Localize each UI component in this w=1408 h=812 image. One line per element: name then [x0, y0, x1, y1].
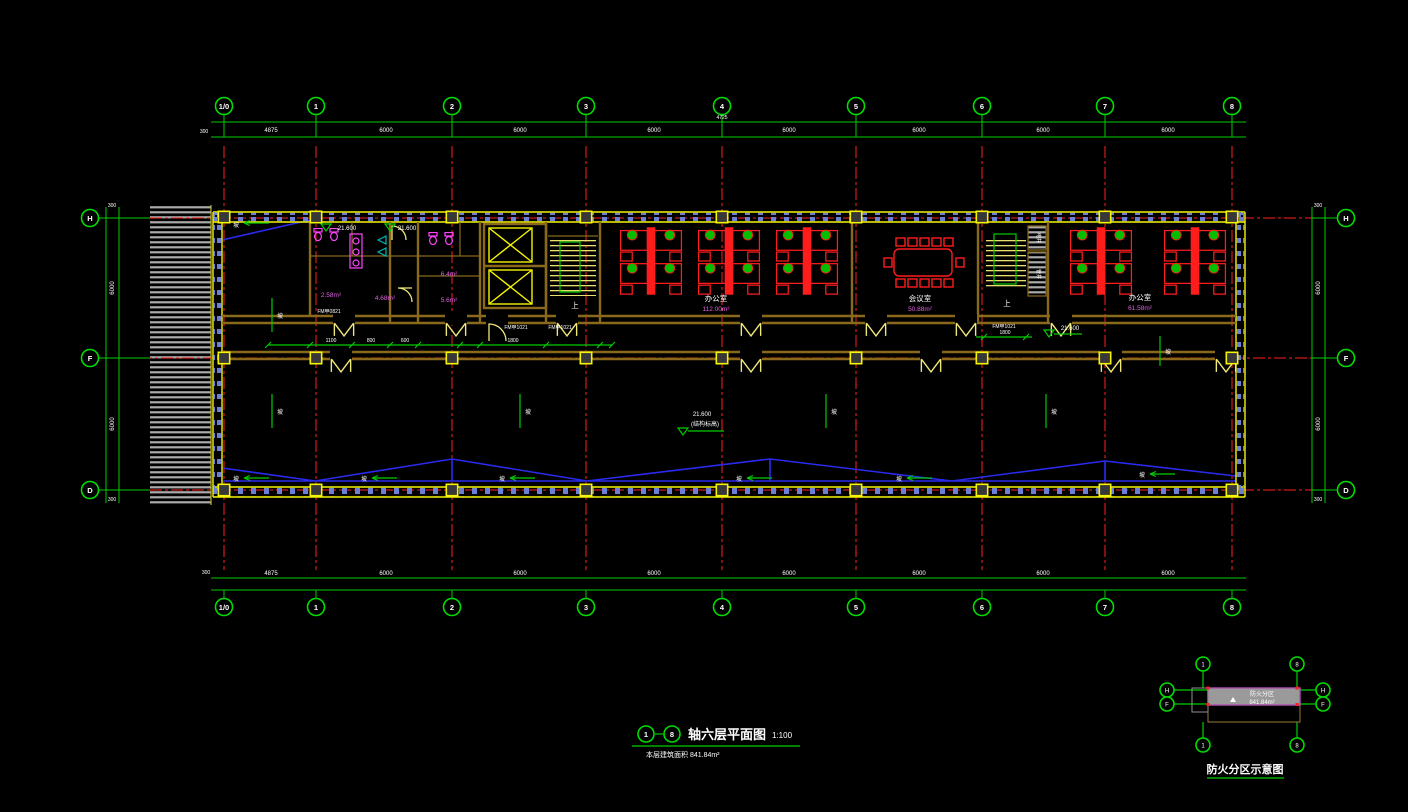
keyplan-bubble: F — [1160, 697, 1174, 711]
grid-bubble-label: 7 — [1103, 603, 1107, 612]
slope-label: 坡 — [277, 312, 283, 320]
keyplan-fire-compartment: 防火分区 841.84m² 1 8 1 8 H F H F 防火分区示意图 — [1160, 657, 1330, 778]
drawing-title-block: 1 8 轴六层平面图 1:100 本层建筑面积 841.84m² — [632, 726, 800, 759]
grid-bubble-label: F — [88, 354, 93, 363]
stair-up-label: 上 — [571, 301, 579, 310]
dim-label-extra: 4725 — [716, 115, 727, 121]
dim-label-edge: 300 — [108, 203, 117, 209]
level-triangle-icon — [678, 428, 688, 435]
dim-label: 6000 — [1036, 128, 1050, 134]
toilet-fixtures — [314, 229, 453, 269]
grid-bubble-label: 1 — [314, 603, 318, 612]
keyplan-zone-label: 防火分区 — [1250, 690, 1274, 698]
grid-bubble-col: 8 — [1224, 98, 1241, 115]
grid-bubbles-right: H F D — [1338, 210, 1355, 499]
grid-bubble-col: 7 — [1097, 98, 1114, 115]
grid-bubble-row: F — [82, 350, 99, 367]
slope-label: 坡 — [831, 408, 837, 416]
grid-bubble-row: H — [82, 210, 99, 227]
grid-bubble-col: 7 — [1097, 599, 1114, 616]
dim-label: 6000 — [110, 417, 116, 431]
dim-label: 6000 — [782, 128, 796, 134]
urinal-icon — [378, 236, 386, 244]
grid-bubble-col: 1 — [308, 599, 325, 616]
grid-bubble-col: 6 — [974, 98, 991, 115]
dim-label: 1100 — [326, 338, 337, 344]
title-bubble: 1 — [638, 726, 654, 742]
dim-label: 6000 — [647, 128, 661, 134]
grid-bubble-label: 2 — [450, 603, 454, 612]
dim-label: 6000 — [513, 128, 527, 134]
dim-label: 6000 — [912, 571, 926, 577]
grid-bubble-label: 8 — [1230, 102, 1234, 111]
keyplan-bubble: 8 — [1290, 738, 1304, 752]
shaft-label: 管井 — [1035, 269, 1042, 279]
slope-arrow-icon — [907, 476, 932, 481]
grid-bubbles-bottom: 1/0 1 2 3 4 5 6 7 8 — [216, 599, 1241, 616]
grid-bubble-col: 2 — [444, 98, 461, 115]
fire-door-tag: FM甲1021 — [548, 325, 572, 331]
urinal-icon — [378, 248, 386, 256]
grid-bubbles-left: H F D — [82, 210, 99, 499]
grid-bubble-col: 5 — [848, 599, 865, 616]
grid-bubble-label: 1/0 — [219, 102, 229, 111]
staircase-2: 上 — [986, 234, 1026, 308]
dim-label-edge: 300 — [200, 129, 209, 135]
room-name: 会议室 — [909, 293, 932, 303]
title-bubble: 8 — [664, 726, 680, 742]
fire-door-tag: FM甲1021 — [504, 325, 528, 331]
slope-label: 坡 — [736, 475, 742, 483]
level-value: 21.600 — [338, 226, 357, 232]
dim-label: 6000 — [1036, 571, 1050, 577]
swing-door-icon — [398, 288, 412, 302]
dimension-labels: 4875 6000 6000 6000 6000 6000 6000 6000 … — [108, 115, 1323, 577]
room-area: 61.58m² — [1128, 305, 1153, 312]
floor-plan-canvas[interactable]: 1/0 1 2 3 4 5 6 7 8 1/0 1 2 3 4 5 6 7 8 … — [0, 0, 1408, 812]
cad-drawing-stage: 1/0 1 2 3 4 5 6 7 8 1/0 1 2 3 4 5 6 7 8 … — [0, 0, 1408, 812]
dim-label: 6000 — [782, 571, 796, 577]
grid-bubble-label: 5 — [854, 603, 858, 612]
grid-bubble-col: 1/0 — [216, 599, 233, 616]
keyplan-bubble-label: H — [1321, 689, 1325, 695]
grid-bubble-label: 1 — [314, 102, 318, 111]
grid-bubble-col: 1/0 — [216, 98, 233, 115]
workstation-cluster — [777, 228, 838, 294]
slope-arrow-icon — [1150, 472, 1175, 477]
grid-bubble-label: 3 — [584, 603, 588, 612]
room-area: 4.68m² — [375, 295, 396, 302]
grid-bubble-row: F — [1338, 350, 1355, 367]
dim-label: 1800 — [999, 330, 1010, 336]
grid-bubble-col: 3 — [578, 98, 595, 115]
grid-bubble-col: 3 — [578, 599, 595, 616]
dim-label-edge: 300 — [202, 570, 211, 576]
dim-label-edge: 300 — [1314, 497, 1323, 503]
slope-arrow-icon — [510, 476, 535, 481]
dim-label: 6000 — [1316, 281, 1322, 295]
dim-label: 6000 — [912, 128, 926, 134]
level-value: 21.600 — [1061, 326, 1080, 332]
level-value: 21.600 — [693, 412, 712, 418]
grid-bubble-label: 7 — [1103, 102, 1107, 111]
workstation-cluster — [1165, 228, 1226, 294]
staircase-1: 上 — [548, 236, 598, 310]
grid-bubble-label: 6 — [980, 102, 984, 111]
level-value: 21.600 — [398, 226, 417, 232]
slope-label: 坡 — [525, 408, 531, 416]
keyplan-bubble: 8 — [1290, 657, 1304, 671]
slope-arrow-icon — [244, 476, 269, 481]
dim-label-edge: 300 — [1314, 203, 1323, 209]
slope-label: 坡 — [277, 408, 283, 416]
room-area: 112.00m² — [703, 306, 731, 313]
grid-bubble-label: 6 — [980, 603, 984, 612]
keyplan-caption: 防火分区示意图 — [1207, 762, 1284, 776]
slope-arrow-icon — [372, 476, 397, 481]
slope-label: 坡 — [233, 221, 239, 229]
conference-table-set — [884, 238, 964, 287]
shaft-label: 电井 — [1035, 233, 1042, 243]
grid-bubble-col: 4 — [714, 98, 731, 115]
keyplan-bubble: F — [1316, 697, 1330, 711]
keyplan-bubble: 1 — [1196, 738, 1210, 752]
drawing-title: 轴六层平面图 — [688, 727, 766, 742]
room-name: 办公室 — [705, 293, 728, 303]
dim-label: 800 — [367, 338, 376, 344]
dim-label: 6000 — [513, 571, 527, 577]
toilet-icon — [429, 233, 437, 245]
slope-label: 坡 — [361, 475, 367, 483]
room-area: 50.88m² — [908, 306, 933, 313]
keyplan-bubble-label: F — [1165, 703, 1169, 709]
keyplan-bubble-label: H — [1165, 689, 1169, 695]
dim-label: 4875 — [264, 571, 278, 577]
keyplan-bubble: 1 — [1196, 657, 1210, 671]
grid-bubble-col: 5 — [848, 98, 865, 115]
grid-bubble-label: 3 — [584, 102, 588, 111]
dim-label-edge: 300 — [108, 497, 117, 503]
grid-bubble-row: D — [1338, 482, 1355, 499]
dim-label: 6000 — [379, 128, 393, 134]
workstation-cluster — [699, 228, 760, 294]
slope-label: 坡 — [499, 475, 505, 483]
dim-label: 6000 — [1161, 128, 1175, 134]
title-bubble-label: 8 — [670, 730, 674, 739]
grid-bubble-label: 8 — [1230, 603, 1234, 612]
dim-label: 6000 — [110, 281, 116, 295]
grid-bubble-col: 8 — [1224, 599, 1241, 616]
slope-label: 坡 — [233, 475, 239, 483]
room-area: 6.4m² — [441, 271, 458, 278]
workstation-cluster — [621, 228, 682, 294]
keyplan-bubble: H — [1160, 683, 1174, 697]
slope-arrow-icon — [244, 221, 269, 226]
dim-label: 6000 — [1161, 571, 1175, 577]
room-area: 5.6m² — [441, 297, 458, 304]
grid-bubble-label: D — [1343, 486, 1349, 495]
grid-bubble-label: H — [87, 214, 92, 223]
dim-label: 600 — [401, 338, 410, 344]
fire-door-tag: FM甲1021 — [992, 324, 1016, 330]
drawing-scale: 1:100 — [772, 731, 793, 740]
keyplan-zone-area: 841.84m² — [1249, 700, 1274, 706]
toilet-icon — [330, 229, 338, 241]
dim-label: 6000 — [379, 571, 393, 577]
toilet-icon — [314, 229, 322, 241]
grid-bubble-label: D — [87, 486, 93, 495]
room-area: 2.58m² — [321, 292, 342, 299]
keyplan-bubble: H — [1316, 683, 1330, 697]
dim-label: 6000 — [647, 571, 661, 577]
stair-up-label: 上 — [1003, 299, 1011, 308]
interior-dimensions: 1100 800 600 1800 1800 — [265, 330, 1032, 348]
grid-bubble-col: 1 — [308, 98, 325, 115]
grid-bubble-label: H — [1343, 214, 1348, 223]
grid-bubble-col: 2 — [444, 599, 461, 616]
grid-bubble-label: 5 — [854, 102, 858, 111]
dim-label: 6000 — [1316, 417, 1322, 431]
slope-label: 坡 — [896, 475, 902, 483]
room-name: 办公室 — [1129, 292, 1152, 302]
fire-door-tag: FM甲0821 — [317, 309, 341, 315]
keyplan-bubble-label: F — [1321, 703, 1325, 709]
grid-bubble-label: 1/0 — [219, 603, 229, 612]
slope-label: 坡 — [1051, 408, 1057, 416]
grid-bubble-col: 4 — [714, 599, 731, 616]
grid-bubble-col: 6 — [974, 599, 991, 616]
grid-bubbles-top: 1/0 1 2 3 4 5 6 7 8 — [216, 98, 1241, 115]
dim-label: 1800 — [507, 338, 518, 344]
title-bubble-label: 1 — [644, 730, 648, 739]
level-triangle-icon — [1044, 330, 1054, 337]
adjacent-building-hatch — [150, 205, 211, 505]
slope-label: 坡 — [1165, 348, 1171, 356]
grid-bubble-row: D — [82, 482, 99, 499]
grid-bubble-label: F — [1344, 354, 1349, 363]
grid-bubble-row: H — [1338, 210, 1355, 227]
drawing-subtitle: 本层建筑面积 841.84m² — [646, 750, 720, 759]
dim-label: 4875 — [264, 128, 278, 134]
workstation-cluster — [1071, 228, 1132, 294]
slope-label: 坡 — [1139, 471, 1145, 479]
grid-bubble-label: 2 — [450, 102, 454, 111]
level-note: (结构标高) — [691, 420, 719, 428]
slope-arrow-icon — [747, 476, 772, 481]
